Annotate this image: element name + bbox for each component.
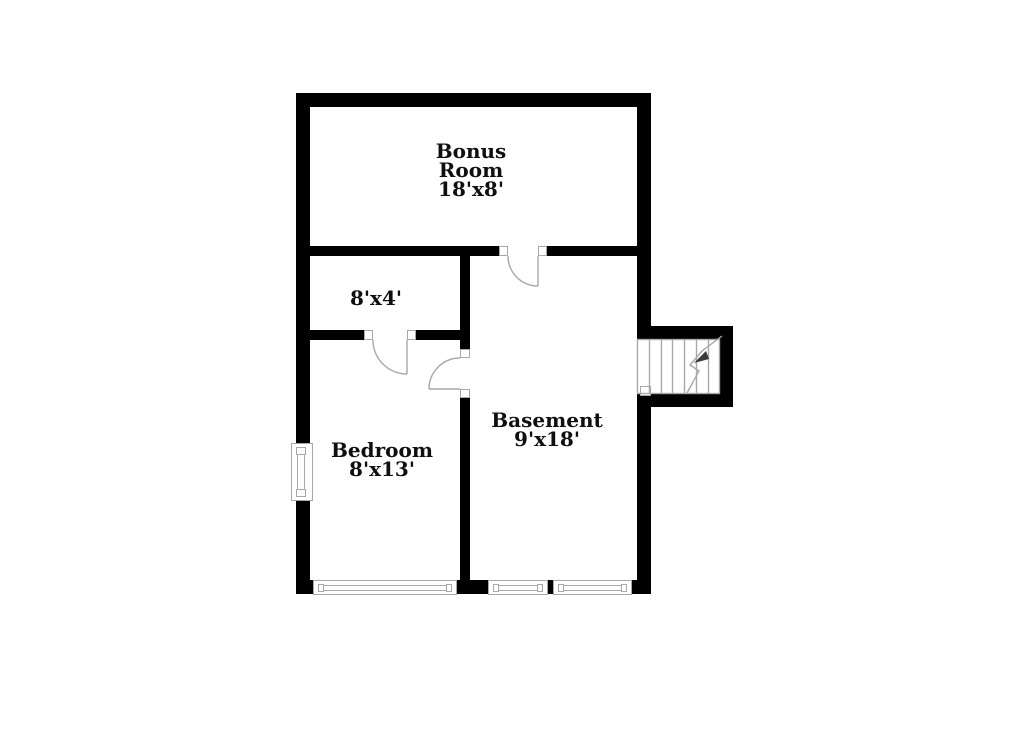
room-name: Bonus Room (426, 142, 516, 180)
wall-divider-upper (460, 246, 470, 349)
window-cap (621, 584, 627, 592)
window-cap (558, 584, 564, 592)
window-left-icon (291, 443, 313, 501)
room-dimensions: 18'x8' (426, 180, 516, 199)
floor-plan: Bonus Room 18'x8' 8'x4' Bedroom 8'x13' B… (0, 0, 1024, 744)
symbol-overlay (0, 0, 1024, 744)
door-jamb (407, 330, 416, 340)
room-label-bedroom: Bedroom 8'x13' (322, 441, 442, 479)
door-jamb (460, 349, 470, 358)
wall-hall-bottom-right (416, 330, 460, 340)
room-label-bonus: Bonus Room 18'x8' (426, 142, 516, 199)
staircase-icon (638, 336, 723, 394)
door-jamb (460, 389, 470, 398)
window-basement-left-icon (488, 580, 548, 595)
door-swing-basement-icon (429, 358, 460, 389)
wall-divider-lower (460, 398, 470, 580)
door-swing-bedroom-icon (373, 340, 407, 374)
room-dimensions: 9'x18' (487, 430, 607, 449)
window-cap (318, 584, 324, 592)
room-dimensions: 8'x4' (326, 289, 426, 308)
stair-direction-arrow-icon (694, 351, 709, 363)
window-basement-right-icon (553, 580, 632, 595)
window-cap (296, 489, 306, 497)
stair-jamb (640, 386, 651, 396)
window-cap (493, 584, 499, 592)
door-jamb (499, 246, 508, 256)
wall-bonus-bottom-right (547, 246, 651, 256)
wall-exterior-top (296, 93, 651, 107)
door-jamb (364, 330, 373, 340)
window-cap (296, 447, 306, 455)
room-label-basement: Basement 9'x18' (487, 411, 607, 449)
window-cap (446, 584, 452, 592)
wall-exterior-right-upper (637, 93, 651, 339)
wall-stair-bottom (651, 394, 733, 407)
window-bedroom-icon (313, 580, 457, 595)
window-pane (494, 585, 542, 591)
wall-exterior-left (296, 93, 310, 594)
wall-exterior-right-lower (637, 394, 651, 594)
window-pane (559, 585, 626, 591)
room-label-hall: 8'x4' (326, 289, 426, 308)
stair-break-line (687, 336, 722, 393)
window-pane (319, 585, 451, 591)
door-jamb (538, 246, 547, 256)
window-cap (537, 584, 543, 592)
room-dimensions: 8'x13' (322, 460, 442, 479)
door-swing-bonus-icon (508, 256, 538, 286)
wall-hall-bottom-left (296, 330, 364, 340)
